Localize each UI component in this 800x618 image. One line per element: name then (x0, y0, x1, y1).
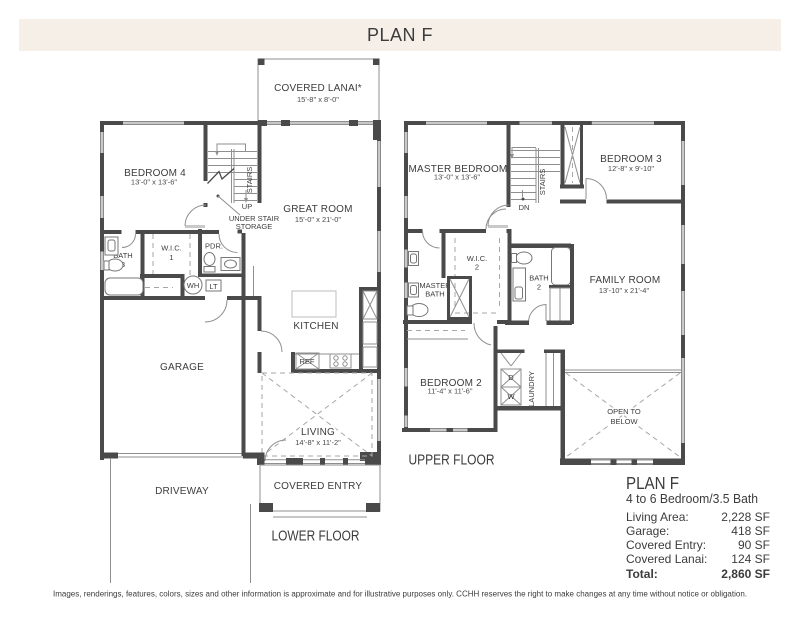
svg-text:COVERED ENTRY: COVERED ENTRY (274, 481, 363, 492)
svg-text:REF: REF (300, 357, 315, 366)
svg-text:OPEN TO: OPEN TO (607, 407, 641, 416)
svg-text:2,228 SF: 2,228 SF (721, 510, 770, 524)
svg-text:UPPER FLOOR: UPPER FLOOR (409, 452, 495, 469)
svg-text:90 SF: 90 SF (738, 538, 770, 552)
svg-text:2,860 SF: 2,860 SF (721, 567, 770, 581)
svg-text:Covered Lanai:: Covered Lanai: (626, 552, 707, 566)
svg-text:DN: DN (519, 203, 530, 212)
svg-text:W.I.C.: W.I.C. (161, 244, 181, 253)
svg-text:Garage:: Garage: (626, 524, 669, 538)
svg-text:LIVING: LIVING (301, 427, 335, 438)
svg-text:KITCHEN: KITCHEN (293, 321, 338, 332)
svg-text:15'-0" x 21'-0": 15'-0" x 21'-0" (295, 215, 341, 224)
svg-text:W: W (507, 392, 515, 401)
svg-text:LT: LT (209, 282, 218, 291)
svg-text:Covered Entry:: Covered Entry: (626, 538, 706, 552)
svg-text:LOWER FLOOR: LOWER FLOOR (272, 528, 360, 545)
svg-text:1: 1 (169, 253, 173, 262)
svg-text:PDR.: PDR. (205, 242, 223, 251)
svg-text:14'-8" x 11'-2": 14'-8" x 11'-2" (295, 438, 341, 447)
svg-text:WH: WH (187, 281, 200, 290)
svg-text:15'-8" x 8'-0": 15'-8" x 8'-0" (297, 95, 339, 104)
svg-text:13'-0" x 13'-6": 13'-0" x 13'-6" (131, 178, 177, 187)
svg-text:Living Area:: Living Area: (626, 510, 689, 524)
svg-text:COVERED LANAI*: COVERED LANAI* (274, 83, 362, 94)
svg-text:BATH: BATH (529, 274, 548, 283)
svg-text:PLAN F: PLAN F (626, 473, 679, 493)
svg-text:2: 2 (475, 263, 479, 272)
svg-text:STAIRS: STAIRS (538, 169, 547, 196)
svg-text:4 to 6 Bedroom/3.5 Bath: 4 to 6 Bedroom/3.5 Bath (626, 492, 758, 506)
svg-text:UP: UP (242, 202, 252, 211)
svg-text:GREAT ROOM: GREAT ROOM (283, 204, 352, 215)
svg-text:Total:: Total: (626, 567, 658, 581)
svg-text:GARAGE: GARAGE (160, 362, 204, 373)
svg-text:D: D (508, 373, 514, 382)
svg-text:13'-0" x 13'-6": 13'-0" x 13'-6" (434, 173, 480, 182)
svg-text:418 SF: 418 SF (731, 524, 770, 538)
svg-text:Images, renderings, features,: Images, renderings, features, colors, si… (53, 590, 747, 599)
svg-text:DRIVEWAY: DRIVEWAY (155, 486, 209, 497)
svg-text:PLAN F: PLAN F (367, 25, 433, 45)
svg-text:BATH: BATH (425, 290, 444, 299)
svg-text:2: 2 (537, 283, 541, 292)
svg-text:LAUNDRY: LAUNDRY (527, 371, 536, 407)
svg-text:11'-4" x 11'-6": 11'-4" x 11'-6" (427, 387, 472, 396)
svg-text:STAIRS: STAIRS (245, 167, 254, 194)
svg-text:124 SF: 124 SF (731, 552, 770, 566)
svg-text:FAMILY ROOM: FAMILY ROOM (590, 275, 661, 286)
svg-text:12'-8" x 9'-10": 12'-8" x 9'-10" (608, 164, 654, 173)
svg-text:BELOW: BELOW (610, 417, 638, 426)
svg-text:13'-10" x 21'-4": 13'-10" x 21'-4" (599, 286, 650, 295)
